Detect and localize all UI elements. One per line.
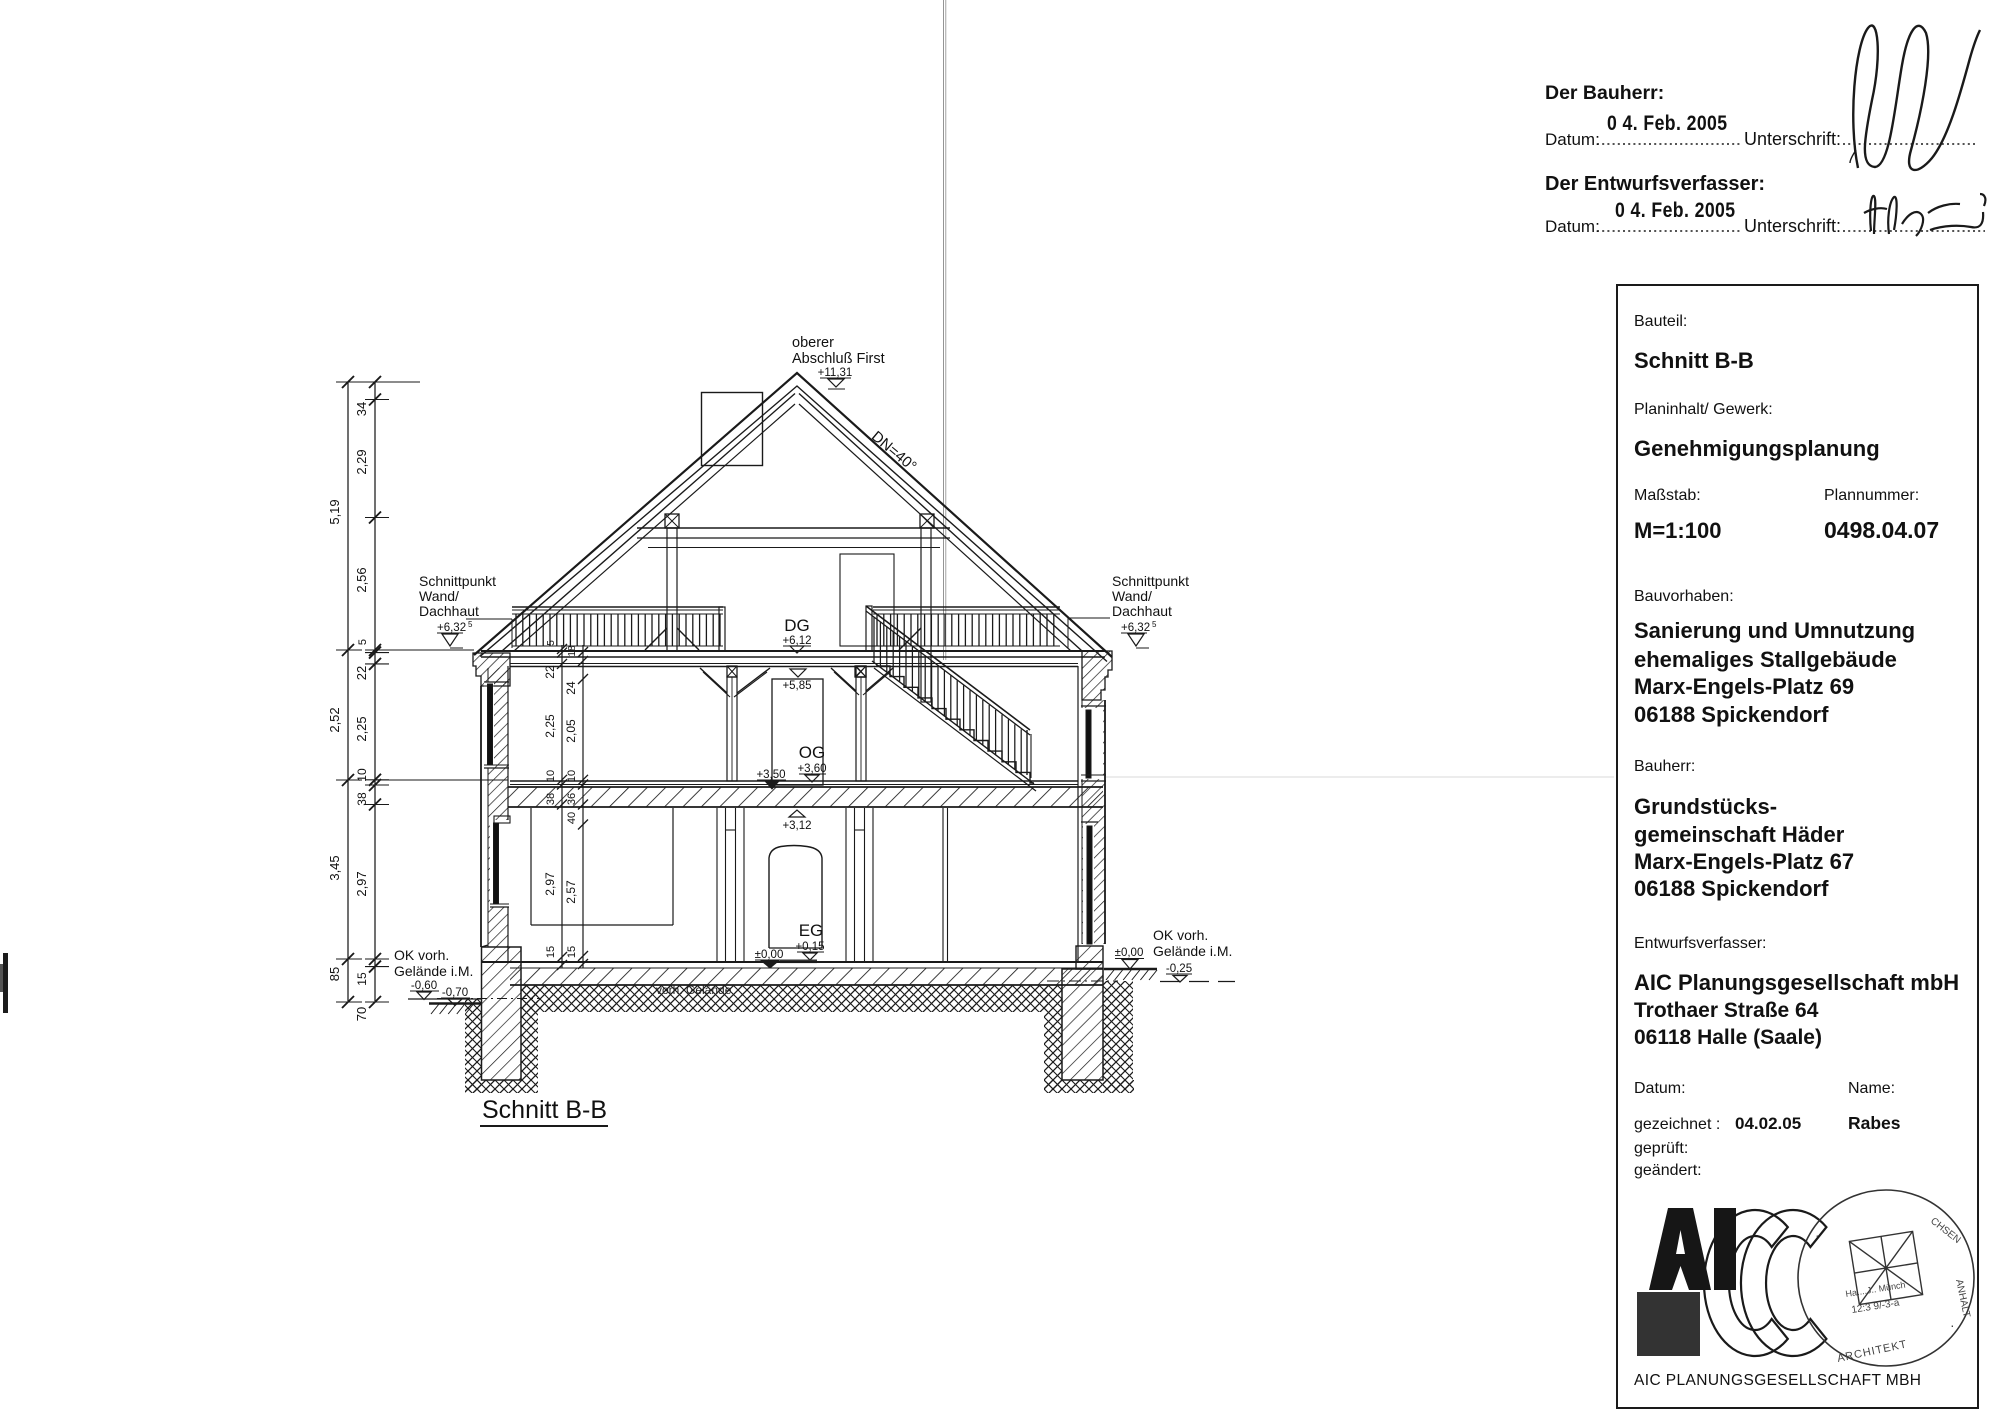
svg-text:gezeichnet :: gezeichnet : <box>1634 1116 1720 1133</box>
svg-text:5: 5 <box>546 640 557 646</box>
svg-text:Trothaer Straße 64: Trothaer Straße 64 <box>1634 999 1819 1022</box>
svg-text:-0,70: -0,70 <box>442 987 468 999</box>
svg-text:36: 36 <box>566 793 578 805</box>
svg-text:06188 Spickendorf: 06188 Spickendorf <box>1634 702 1829 727</box>
svg-text:15: 15 <box>545 946 557 958</box>
svg-text:geprüft:: geprüft: <box>1634 1140 1688 1157</box>
svg-text:0 4. Feb. 2005: 0 4. Feb. 2005 <box>1607 112 1728 136</box>
svg-text:Datum:: Datum: <box>1634 1080 1686 1097</box>
svg-text:15: 15 <box>566 946 578 958</box>
svg-text:38: 38 <box>355 792 369 806</box>
svg-text:5: 5 <box>357 639 369 645</box>
svg-text:Bauteil:: Bauteil: <box>1634 313 1687 330</box>
svg-text:Dachhaut: Dachhaut <box>419 603 479 619</box>
svg-text:geändert:: geändert: <box>1634 1162 1702 1179</box>
svg-text:24: 24 <box>564 681 578 695</box>
svg-text:+5,85: +5,85 <box>782 680 811 692</box>
svg-text:Bauvorhaben:: Bauvorhaben: <box>1634 588 1734 605</box>
svg-text:5: 5 <box>1152 620 1157 629</box>
svg-text:Schnittpunkt: Schnittpunkt <box>419 573 496 589</box>
svg-text:Planinhalt/ Gewerk:: Planinhalt/ Gewerk: <box>1634 401 1773 418</box>
svg-text:5: 5 <box>468 620 473 629</box>
svg-text:Unterschrift:: Unterschrift: <box>1744 129 1841 149</box>
svg-text:OG: OG <box>799 743 825 762</box>
svg-text:Unterschrift:: Unterschrift: <box>1744 216 1841 236</box>
svg-text:Entwurfsverfasser:: Entwurfsverfasser: <box>1634 935 1766 952</box>
svg-text:Rabes: Rabes <box>1848 1113 1901 1133</box>
svg-text:+3,12: +3,12 <box>782 820 811 832</box>
svg-text:Schnittpunkt: Schnittpunkt <box>1112 573 1189 589</box>
svg-text:·: · <box>1815 1227 1820 1243</box>
svg-text:Schnitt B-B: Schnitt B-B <box>482 1096 607 1124</box>
svg-text:vorh. Gelände: vorh. Gelände <box>656 983 732 997</box>
svg-text:3,45: 3,45 <box>327 855 342 880</box>
svg-text:Name:: Name: <box>1848 1080 1895 1097</box>
svg-text:5,19: 5,19 <box>327 499 342 524</box>
svg-text:Maßstab:: Maßstab: <box>1634 487 1701 504</box>
svg-text:85: 85 <box>327 967 342 981</box>
svg-text:22: 22 <box>354 666 369 680</box>
svg-text:Bauherr:: Bauherr: <box>1634 758 1695 775</box>
svg-text:10: 10 <box>545 770 557 782</box>
svg-text:Datum:: Datum: <box>1545 130 1600 149</box>
svg-text:04.02.05: 04.02.05 <box>1735 1114 1801 1133</box>
svg-text:OK vorh.: OK vorh. <box>394 947 449 963</box>
svg-text:Marx-Engels-Platz 69: Marx-Engels-Platz 69 <box>1634 674 1854 699</box>
svg-text:70: 70 <box>354 1007 369 1021</box>
svg-text:Gelände i.M.: Gelände i.M. <box>394 963 473 979</box>
svg-text:ehemaliges Stallgebäude: ehemaliges Stallgebäude <box>1634 647 1897 672</box>
svg-text:±0,00: ±0,00 <box>755 949 784 961</box>
svg-text:Marx-Engels-Platz 67: Marx-Engels-Platz 67 <box>1634 849 1854 874</box>
svg-text:Schnitt B-B: Schnitt B-B <box>1634 348 1754 373</box>
svg-text:2,29: 2,29 <box>354 449 369 474</box>
svg-text:10: 10 <box>566 770 578 782</box>
svg-text:2,05: 2,05 <box>564 719 578 743</box>
svg-text:M=1:100: M=1:100 <box>1634 518 1721 543</box>
svg-text:AIC PLANUNGSGESELLSCHAFT MBH: AIC PLANUNGSGESELLSCHAFT MBH <box>1634 1372 1921 1389</box>
svg-text:Der Bauherr:: Der Bauherr: <box>1545 82 1664 104</box>
svg-text:06118 Halle (Saale): 06118 Halle (Saale) <box>1634 1026 1822 1049</box>
svg-text:34: 34 <box>354 402 369 416</box>
svg-text:+6,32: +6,32 <box>437 622 466 634</box>
svg-text:22: 22 <box>543 665 557 679</box>
svg-text:0498.04.07: 0498.04.07 <box>1824 517 1939 543</box>
svg-text:OK vorh.: OK vorh. <box>1153 927 1208 943</box>
svg-text:·: · <box>1950 1317 1955 1333</box>
svg-text:Sanierung und Umnutzung: Sanierung und Umnutzung <box>1634 618 1915 643</box>
svg-text:2,97: 2,97 <box>354 871 369 896</box>
svg-text:+3,60: +3,60 <box>797 763 826 775</box>
svg-text:Genehmigungsplanung: Genehmigungsplanung <box>1634 436 1880 461</box>
svg-text:+0,15: +0,15 <box>795 941 824 953</box>
svg-text:2,52: 2,52 <box>327 707 342 732</box>
svg-text:Gelände i.M.: Gelände i.M. <box>1153 943 1232 959</box>
svg-text:Datum:: Datum: <box>1545 217 1600 236</box>
svg-text:±0,00: ±0,00 <box>1115 947 1144 959</box>
svg-text:+11,31: +11,31 <box>818 367 853 379</box>
svg-text:-0,25: -0,25 <box>1166 963 1192 975</box>
svg-text:10: 10 <box>355 768 369 782</box>
svg-text:Der Entwurfsverfasser:: Der Entwurfsverfasser: <box>1545 173 1765 195</box>
svg-text:+6,12: +6,12 <box>782 635 811 647</box>
svg-text:+6,32: +6,32 <box>1121 622 1150 634</box>
svg-text:EG: EG <box>799 921 824 940</box>
svg-text:06188 Spickendorf: 06188 Spickendorf <box>1634 876 1829 901</box>
svg-text:2,97: 2,97 <box>543 872 557 896</box>
svg-text:2,25: 2,25 <box>543 714 557 738</box>
svg-text:gemeinschaft Häder: gemeinschaft Häder <box>1634 822 1845 847</box>
svg-text:2,56: 2,56 <box>354 567 369 592</box>
svg-text:2,25: 2,25 <box>354 716 369 741</box>
svg-text:Grundstücks-: Grundstücks- <box>1634 794 1777 819</box>
svg-text:Plannummer:: Plannummer: <box>1824 487 1919 504</box>
svg-text:0 4. Feb. 2005: 0 4. Feb. 2005 <box>1615 199 1736 223</box>
svg-text:40: 40 <box>566 812 578 824</box>
svg-text:18: 18 <box>567 645 578 657</box>
svg-text:AIC Planungsgesellschaft mbH: AIC Planungsgesellschaft mbH <box>1634 970 1959 995</box>
svg-text:38: 38 <box>545 793 557 805</box>
svg-text:-0,60: -0,60 <box>411 980 437 992</box>
svg-text:oberer: oberer <box>792 335 834 351</box>
svg-text:DG: DG <box>784 616 810 635</box>
svg-text:Wand/: Wand/ <box>1112 588 1152 604</box>
svg-text:+3,50: +3,50 <box>756 769 785 781</box>
svg-text:Wand/: Wand/ <box>419 588 459 604</box>
svg-text:2,57: 2,57 <box>564 880 578 904</box>
svg-text:Dachhaut: Dachhaut <box>1112 603 1172 619</box>
svg-text:Abschluß First: Abschluß First <box>792 351 885 367</box>
svg-text:15: 15 <box>355 972 369 986</box>
